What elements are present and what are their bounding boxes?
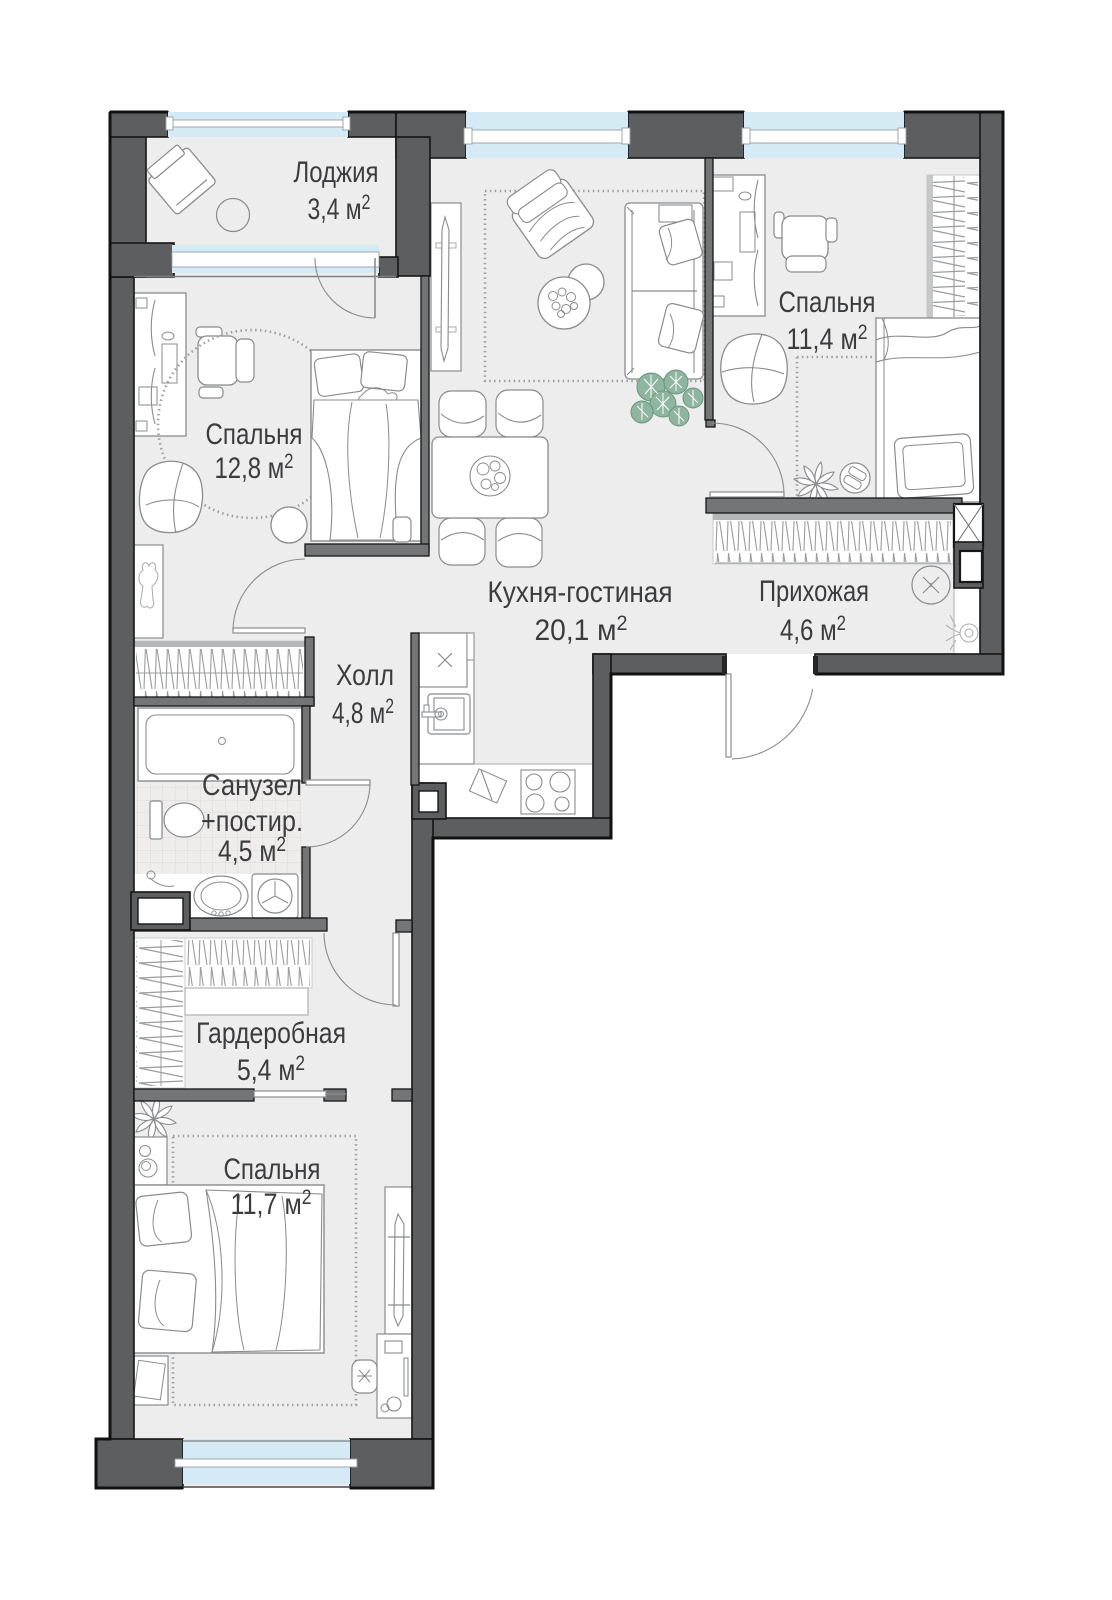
- svg-text:Лоджия: Лоджия: [294, 156, 379, 189]
- svg-text:Кухня-гостиная: Кухня-гостиная: [488, 576, 673, 609]
- svg-text:4,5 м2: 4,5 м2: [218, 833, 286, 868]
- svg-text:+постир.: +постир.: [201, 805, 303, 838]
- svg-text:Санузел: Санузел: [202, 769, 302, 802]
- svg-text:Прихожая: Прихожая: [759, 575, 869, 608]
- svg-text:Спальня: Спальня: [779, 286, 876, 319]
- svg-text:4,6 м2: 4,6 м2: [780, 612, 846, 647]
- svg-text:Холл: Холл: [336, 659, 394, 692]
- svg-text:5,4 м2: 5,4 м2: [237, 1052, 305, 1087]
- svg-text:11,4 м2: 11,4 м2: [787, 321, 868, 356]
- svg-text:3,4 м2: 3,4 м2: [308, 191, 371, 226]
- svg-text:12,8 м2: 12,8 м2: [215, 450, 294, 485]
- svg-text:Спальня: Спальня: [206, 418, 303, 451]
- svg-text:20,1 м2: 20,1 м2: [535, 612, 628, 647]
- svg-text:4,8 м2: 4,8 м2: [332, 695, 394, 730]
- svg-text:Спальня: Спальня: [224, 1153, 321, 1186]
- svg-text:Гардеробная: Гардеробная: [196, 1017, 346, 1050]
- svg-text:11,7 м2: 11,7 м2: [231, 1186, 312, 1221]
